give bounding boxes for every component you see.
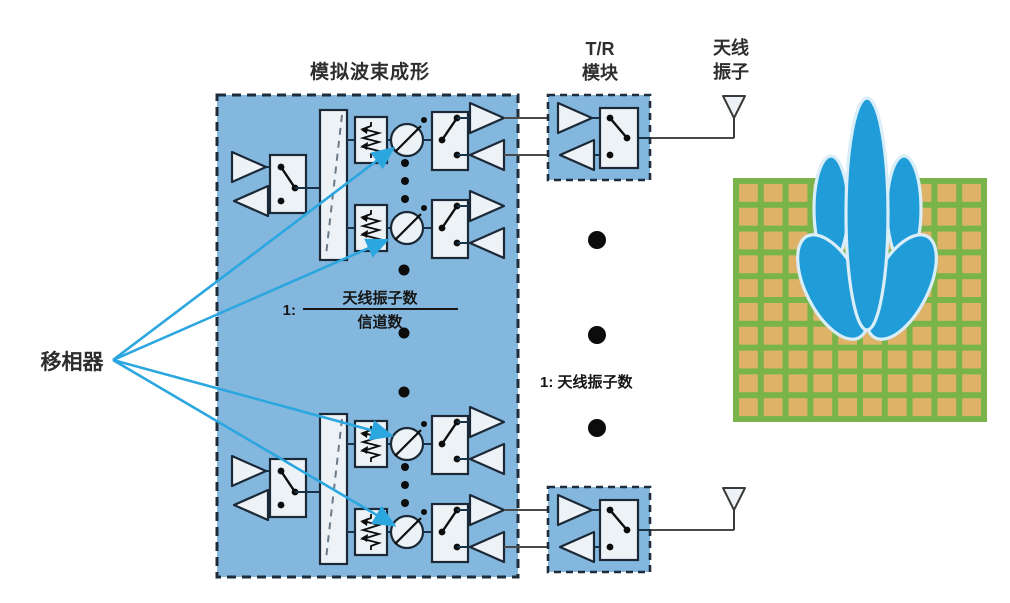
antenna-element-bottom <box>723 488 745 530</box>
tr-module-label-line2: 模块 <box>582 62 619 83</box>
ellipsis-dot-large <box>588 419 606 437</box>
ratio-prefix: 1: <box>283 302 296 319</box>
ellipsis-dot-large <box>588 231 606 249</box>
antenna-element-label-line2: 振子 <box>713 61 749 82</box>
ellipsis-dot <box>399 265 410 276</box>
ratio-numerator: 天线振子数 <box>342 289 418 307</box>
beamforming-architecture-figure: 1: 天线振子数 信道数 1: 天线振子数 <box>0 0 1010 603</box>
beam-main-lobe <box>846 98 888 330</box>
antenna-element-label-line1: 天线 <box>713 37 749 58</box>
antenna-element-top <box>723 96 745 138</box>
phase-shifter-label: 移相器 <box>41 350 105 374</box>
ellipsis-dot-large <box>588 326 606 344</box>
tr-module-label-line1: T/R <box>586 39 615 59</box>
analog-beamforming-label: 模拟波束成形 <box>310 60 430 83</box>
tr-module-top <box>548 95 650 180</box>
ellipsis-dot <box>399 387 410 398</box>
interconnect-wires <box>504 118 734 547</box>
element-ratio-label: 1: 天线振子数 <box>540 373 634 391</box>
beamforming-diagram: 1: 天线振子数 信道数 1: 天线振子数 <box>0 0 1010 603</box>
tr-module-bottom <box>548 487 650 572</box>
ratio-denominator: 信道数 <box>357 313 403 331</box>
